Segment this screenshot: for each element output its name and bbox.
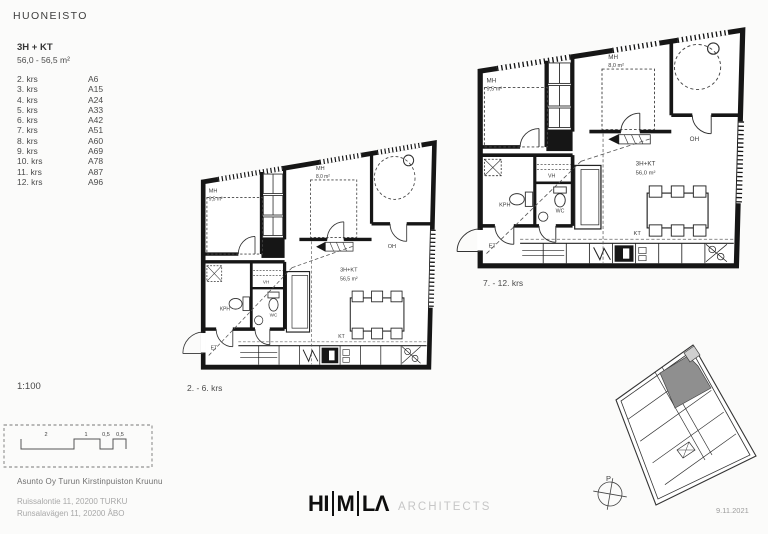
- room-label-mh1: MH: [209, 188, 218, 194]
- floor-row: 6. krsA42: [17, 115, 103, 125]
- floor-label: 7. krs: [17, 125, 88, 135]
- floor-row: 2. krsA6: [17, 74, 103, 84]
- floor-row: 3. krsA15: [17, 84, 103, 94]
- scale-bar: 2 1 0,5 0,5: [3, 424, 153, 468]
- floor-row: 7. krsA51: [17, 125, 103, 135]
- room-label-vh: VH: [263, 279, 270, 285]
- floor-row: 12. krsA96: [17, 177, 103, 187]
- scale-number: 0,5: [102, 432, 110, 438]
- logo-letters-la: LΛ: [362, 493, 389, 515]
- logo-letters-hi: HI: [308, 493, 329, 515]
- floor-label: 6. krs: [17, 115, 88, 125]
- apartment-area-range: 56,0 - 56,5 m²: [17, 55, 70, 65]
- floor-row: 4. krsA24: [17, 95, 103, 105]
- room-label-oh: OH: [388, 244, 396, 250]
- logo-letters-m: M: [337, 493, 355, 515]
- floor-label: 4. krs: [17, 95, 88, 105]
- room-label-mh2: MH: [608, 54, 618, 61]
- unit-area-label: 56,0 m²: [636, 171, 656, 177]
- room-label-et: ET: [489, 243, 497, 249]
- room-area-mh1: 9,5 m²: [209, 196, 223, 202]
- drawing-date: 9.11.2021: [716, 506, 749, 515]
- unit-number: A15: [88, 84, 103, 94]
- logo-bar: [357, 491, 360, 516]
- room-label-kt: KT: [634, 231, 642, 237]
- unit-number: A6: [88, 74, 98, 84]
- plan-caption-2-6: 2. - 6. krs: [187, 383, 222, 393]
- floor-label: 9. krs: [17, 146, 88, 156]
- project-name: Asunto Oy Turun Kirstinpuiston Kruunu: [17, 477, 163, 486]
- unit-number: A33: [88, 105, 103, 115]
- floor-row: 10. krsA78: [17, 156, 103, 166]
- unit-type-label: 3H+KT: [340, 267, 358, 273]
- floor-label: 3. krs: [17, 84, 88, 94]
- unit-number: A60: [88, 136, 103, 146]
- room-area-mh1: 9,5 m²: [487, 87, 503, 93]
- room-label-kph: KPH: [220, 306, 230, 312]
- unit-number: A42: [88, 115, 103, 125]
- logo-suffix: ARCHITECTS: [398, 501, 491, 516]
- room-area-mh2: 8,0 m²: [316, 174, 330, 180]
- project-address-fi: Ruissalontie 11, 20200 TURKU: [17, 497, 127, 506]
- plan-caption-7-12: 7. - 12. krs: [483, 278, 523, 288]
- north-arrow-icon: P: [593, 474, 630, 510]
- room-label-wc: WC: [270, 312, 278, 318]
- project-address-sv: Runsalavägen 11, 20200 ÅBO: [17, 509, 124, 518]
- floor-plan-2-6-krs: MH 9,5 m² MH 8,0 m² OH 3H+KT 56,5 m² KPH…: [181, 137, 440, 373]
- unit-number: A78: [88, 156, 103, 166]
- floor-row: 11. krsA87: [17, 167, 103, 177]
- unit-area-label: 56,5 m²: [340, 276, 358, 282]
- floor-label: 8. krs: [17, 136, 88, 146]
- floor-unit-list: 2. krsA6 3. krsA15 4. krsA24 5. krsA33 6…: [17, 74, 103, 187]
- room-label-mh2: MH: [316, 166, 325, 172]
- room-label-mh1: MH: [487, 77, 497, 84]
- room-label-oh: OH: [690, 136, 699, 143]
- floor-label: 5. krs: [17, 105, 88, 115]
- scale-number: 1: [84, 432, 87, 438]
- room-label-kph: KPH: [499, 202, 510, 208]
- himla-logo: HI M LΛ ARCHITECTS: [308, 491, 491, 516]
- unit-number: A24: [88, 95, 103, 105]
- scale-ratio: 1:100: [17, 381, 41, 392]
- room-label-et: ET: [211, 345, 218, 351]
- floor-row: 8. krsA60: [17, 136, 103, 146]
- unit-number: A51: [88, 125, 103, 135]
- room-area-mh2: 8,0 m²: [608, 63, 624, 69]
- floor-plan-7-12-krs: MH 9,5 m² MH 8,0 m² OH 3H+KT 56,0 m² KPH…: [455, 24, 749, 272]
- logo-bar: [332, 491, 335, 516]
- floor-label: 2. krs: [17, 74, 88, 84]
- unit-number: A96: [88, 177, 103, 187]
- site-key-plan: P: [593, 338, 765, 510]
- floor-label: 10. krs: [17, 156, 88, 166]
- floor-row: 9. krsA69: [17, 146, 103, 156]
- apartment-type: 3H + KT: [17, 42, 53, 53]
- floor-label: 12. krs: [17, 177, 88, 187]
- page-title: HUONEISTO: [13, 10, 88, 22]
- room-label-kt: KT: [338, 334, 345, 340]
- scale-number: 0,5: [116, 432, 124, 438]
- floor-row: 5. krsA33: [17, 105, 103, 115]
- unit-type-label: 3H+KT: [636, 160, 656, 167]
- unit-number: A87: [88, 167, 103, 177]
- floor-label: 11. krs: [17, 167, 88, 177]
- unit-number: A69: [88, 146, 103, 156]
- scale-number: 2: [44, 432, 47, 438]
- room-label-vh: VH: [548, 174, 556, 180]
- room-label-wc: WC: [556, 209, 565, 215]
- himla-wordmark: HI M LΛ: [308, 491, 389, 516]
